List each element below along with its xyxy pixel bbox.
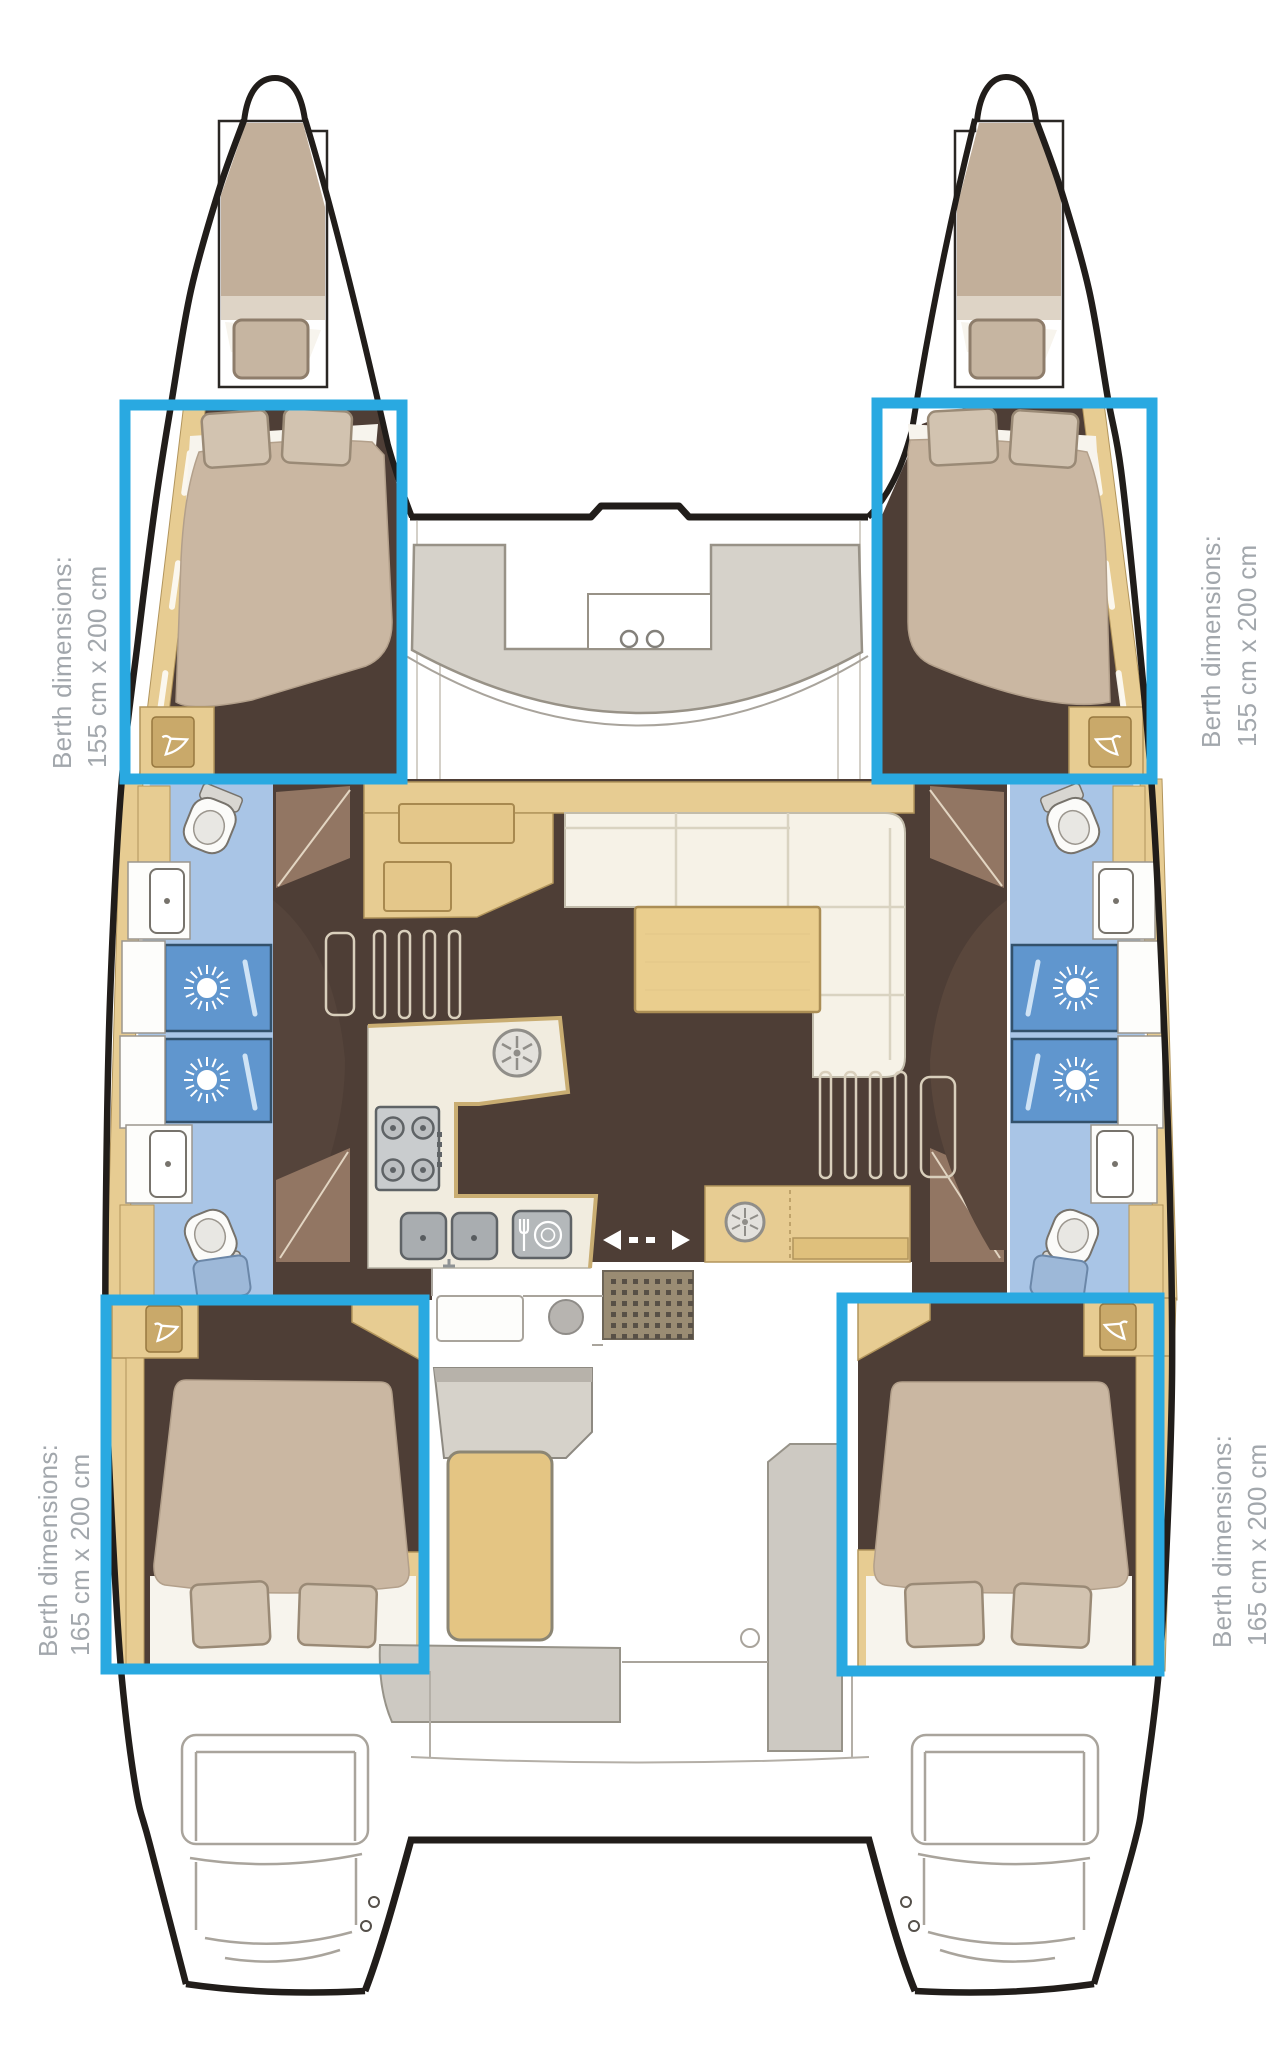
svg-text:Berth dimensions:: Berth dimensions: <box>33 1444 63 1657</box>
svg-text:155 cm x 200 cm: 155 cm x 200 cm <box>82 566 112 768</box>
svg-text:Berth dimensions:: Berth dimensions: <box>1196 535 1226 748</box>
svg-text:Berth dimensions:: Berth dimensions: <box>47 556 77 769</box>
svg-text:155 cm x 200 cm: 155 cm x 200 cm <box>1232 545 1262 747</box>
svg-text:165 cm x 200 cm: 165 cm x 200 cm <box>65 1454 95 1656</box>
svg-text:165 cm x 200 cm: 165 cm x 200 cm <box>1242 1444 1272 1646</box>
svg-text:Berth dimensions:: Berth dimensions: <box>1207 1435 1237 1648</box>
